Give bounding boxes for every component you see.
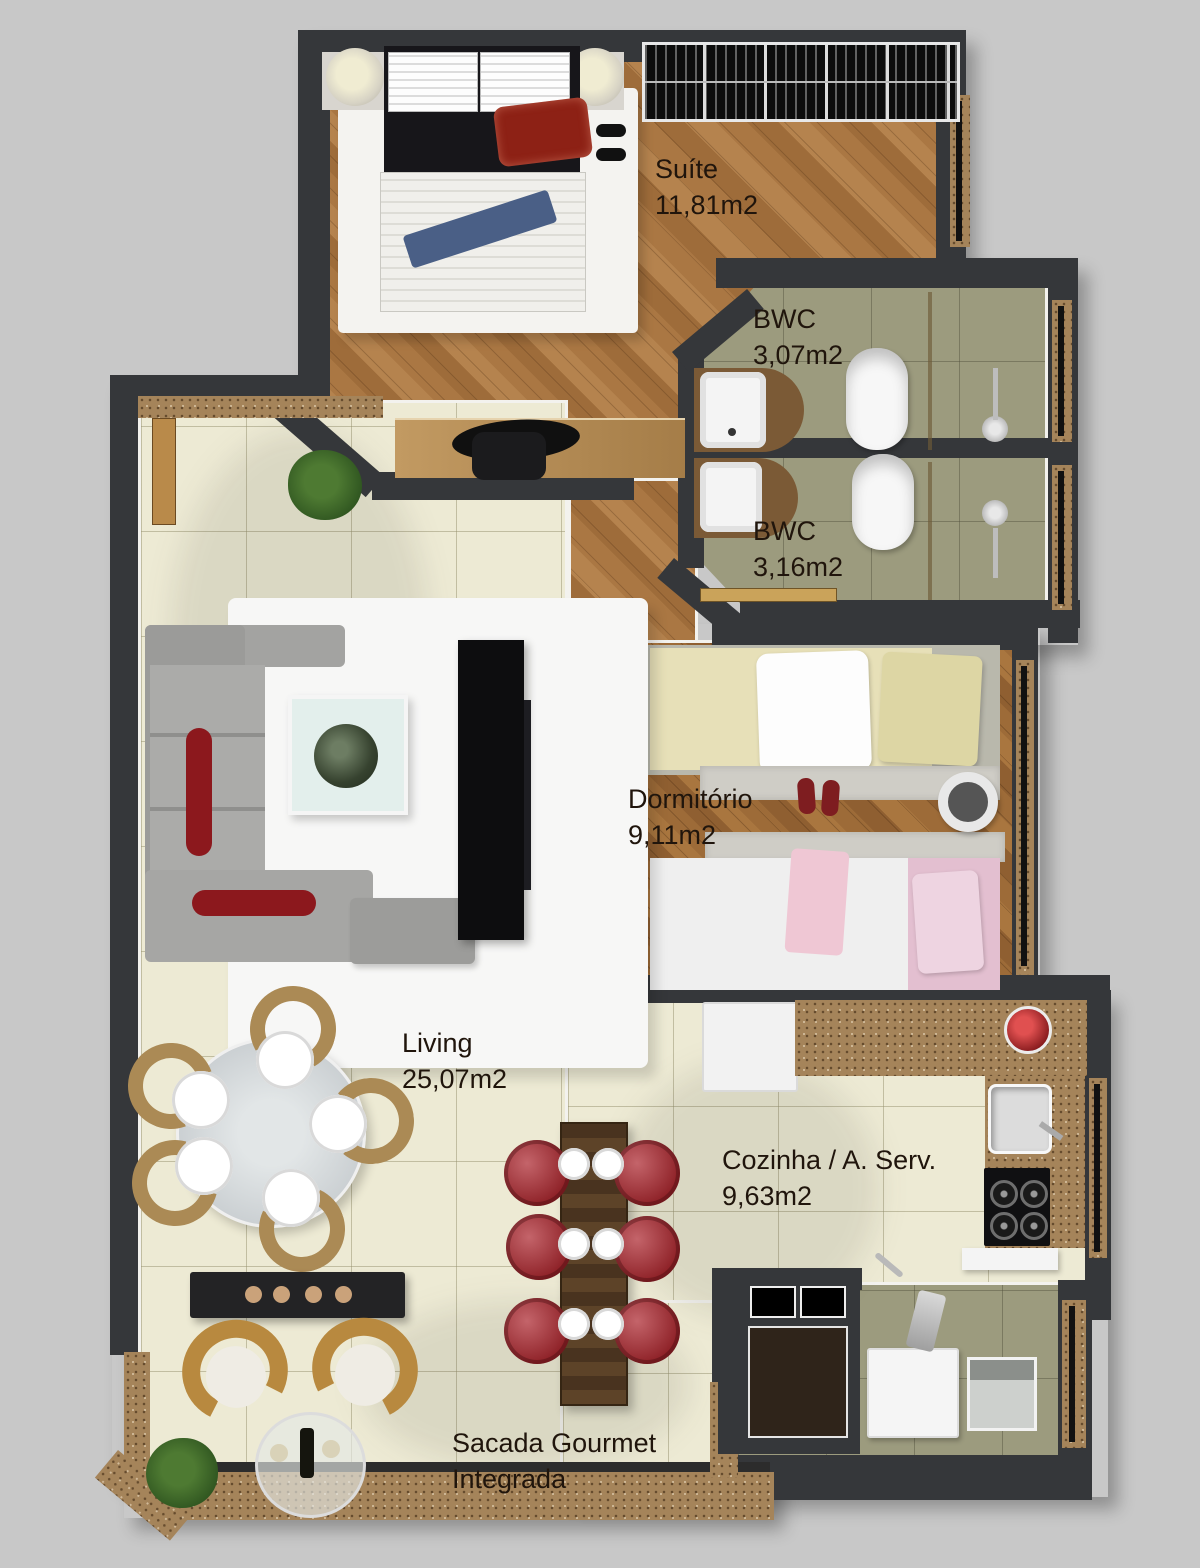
- bwc2-toilet: [852, 454, 914, 550]
- floor-plan: Suíte 11,81m2 BWC 3,07m2 BWC 3,16m2 Dorm…: [0, 0, 1200, 1568]
- washing-machine: [867, 1348, 959, 1438]
- fridge: [702, 1002, 798, 1092]
- bwc2-window-glass: [1058, 471, 1064, 604]
- suite-red-pillow: [493, 96, 594, 167]
- plate: [256, 1031, 314, 1089]
- cup: [322, 1440, 340, 1458]
- burner: [1020, 1180, 1048, 1208]
- room-area: 11,81m2: [655, 188, 758, 224]
- laundry-tub: [967, 1357, 1037, 1431]
- kitchen-shelf: [962, 1248, 1058, 1270]
- sideboard-knob: [245, 1286, 262, 1303]
- cup: [270, 1444, 288, 1462]
- bwc2-towel-rail: [700, 588, 837, 602]
- dorm-shoe: [821, 779, 840, 816]
- suite-wardrobe: [642, 42, 960, 122]
- laundry-window-glass: [1069, 1306, 1075, 1442]
- sideboard-knob: [335, 1286, 352, 1303]
- plate: [172, 1071, 230, 1129]
- dorm-bed2-blanket: [784, 848, 849, 956]
- fruit-bowl: [1004, 1006, 1052, 1054]
- suite-desk-chair-seat: [472, 432, 546, 480]
- dorm-shoe: [797, 777, 816, 814]
- bwc1-sink-drain: [728, 428, 736, 436]
- plate: [175, 1137, 233, 1195]
- room-name: BWC: [753, 514, 843, 550]
- sideboard-knob: [273, 1286, 290, 1303]
- laundry-cabinet-front: [748, 1326, 848, 1438]
- bwc1-shower-glass: [928, 292, 932, 450]
- sideboard: [190, 1272, 405, 1318]
- plate: [592, 1148, 624, 1180]
- room-name-line2: Integrada: [452, 1462, 656, 1498]
- kitchen-sink: [988, 1084, 1052, 1154]
- plate: [558, 1228, 590, 1260]
- burner: [990, 1180, 1018, 1208]
- bwc1-sink: [700, 372, 766, 448]
- laundry-hatch: [800, 1286, 846, 1318]
- kitchen-window-glass: [1094, 1084, 1100, 1252]
- bwc2-shower-head: [982, 500, 1008, 526]
- bwc2-shower-glass: [928, 462, 932, 600]
- room-name: Suíte: [655, 152, 758, 188]
- room-name: Dormitório: [628, 782, 753, 818]
- suite-pillow-left: [388, 52, 478, 112]
- bwc1-toilet: [846, 348, 908, 450]
- room-area: 25,07m2: [402, 1062, 507, 1098]
- dorm-bed2-pillow: [912, 870, 985, 974]
- tv-screen: [524, 700, 531, 890]
- suite-slipper: [596, 148, 626, 161]
- entry-threshold: [138, 396, 383, 418]
- burner: [990, 1212, 1018, 1240]
- bwc1-window-glass: [1058, 306, 1064, 436]
- suite-window-glass: [956, 101, 962, 241]
- room-label-bwc2: BWC 3,16m2: [753, 514, 843, 585]
- room-label-living: Living 25,07m2: [402, 1026, 507, 1097]
- red-chair: [614, 1298, 680, 1364]
- wine-bottle: [300, 1428, 314, 1478]
- room-name: Sacada Gourmet: [452, 1426, 656, 1462]
- plate: [558, 1308, 590, 1340]
- sofa-red-bolster-v: [186, 728, 212, 856]
- bwc1-shower-stem: [993, 368, 998, 420]
- room-name: Living: [402, 1026, 507, 1062]
- tv-cabinet: [458, 640, 524, 940]
- plant: [288, 450, 362, 520]
- room-label-bwc1: BWC 3,07m2: [753, 302, 843, 373]
- room-area: 9,63m2: [722, 1179, 936, 1215]
- red-chair: [614, 1140, 680, 1206]
- burner: [1020, 1212, 1048, 1240]
- room-name: Cozinha / A. Serv.: [722, 1143, 936, 1179]
- dorm-ottoman: [938, 772, 998, 832]
- dorm-bed1-shirt: [756, 650, 872, 774]
- room-area: 3,07m2: [753, 338, 843, 374]
- plate: [592, 1308, 624, 1340]
- plate: [558, 1148, 590, 1180]
- laundry-hatch: [750, 1286, 796, 1318]
- sofa-red-bolster-h: [192, 890, 316, 916]
- sideboard-knob: [305, 1286, 322, 1303]
- red-chair: [614, 1216, 680, 1282]
- plate: [262, 1169, 320, 1227]
- sofa-bottom-seat: [145, 870, 373, 962]
- suite-slipper: [596, 124, 626, 137]
- room-label-sacada: Sacada Gourmet Integrada: [452, 1426, 656, 1497]
- wall-bwc-top: [716, 258, 1078, 288]
- room-area: 3,16m2: [753, 550, 843, 586]
- sofa-chaise: [350, 898, 475, 964]
- dorm-bed1-pillow: [877, 651, 983, 766]
- plate: [592, 1228, 624, 1260]
- room-area: 9,11m2: [628, 818, 753, 854]
- wall-living-left: [110, 375, 138, 1355]
- room-label-dormitorio: Dormitório 9,11m2: [628, 782, 753, 853]
- entry-door: [152, 418, 176, 525]
- room-name: BWC: [753, 302, 843, 338]
- bwc2-shower-stem: [993, 528, 998, 578]
- suite-lamp-left: [326, 48, 384, 106]
- plant: [146, 1438, 218, 1508]
- room-label-suite: Suíte 11,81m2: [655, 152, 758, 223]
- plate: [309, 1095, 367, 1153]
- dorm-window-glass: [1021, 666, 1027, 966]
- room-label-cozinha: Cozinha / A. Serv. 9,63m2: [722, 1143, 936, 1214]
- coffee-table-flowers: [314, 724, 378, 788]
